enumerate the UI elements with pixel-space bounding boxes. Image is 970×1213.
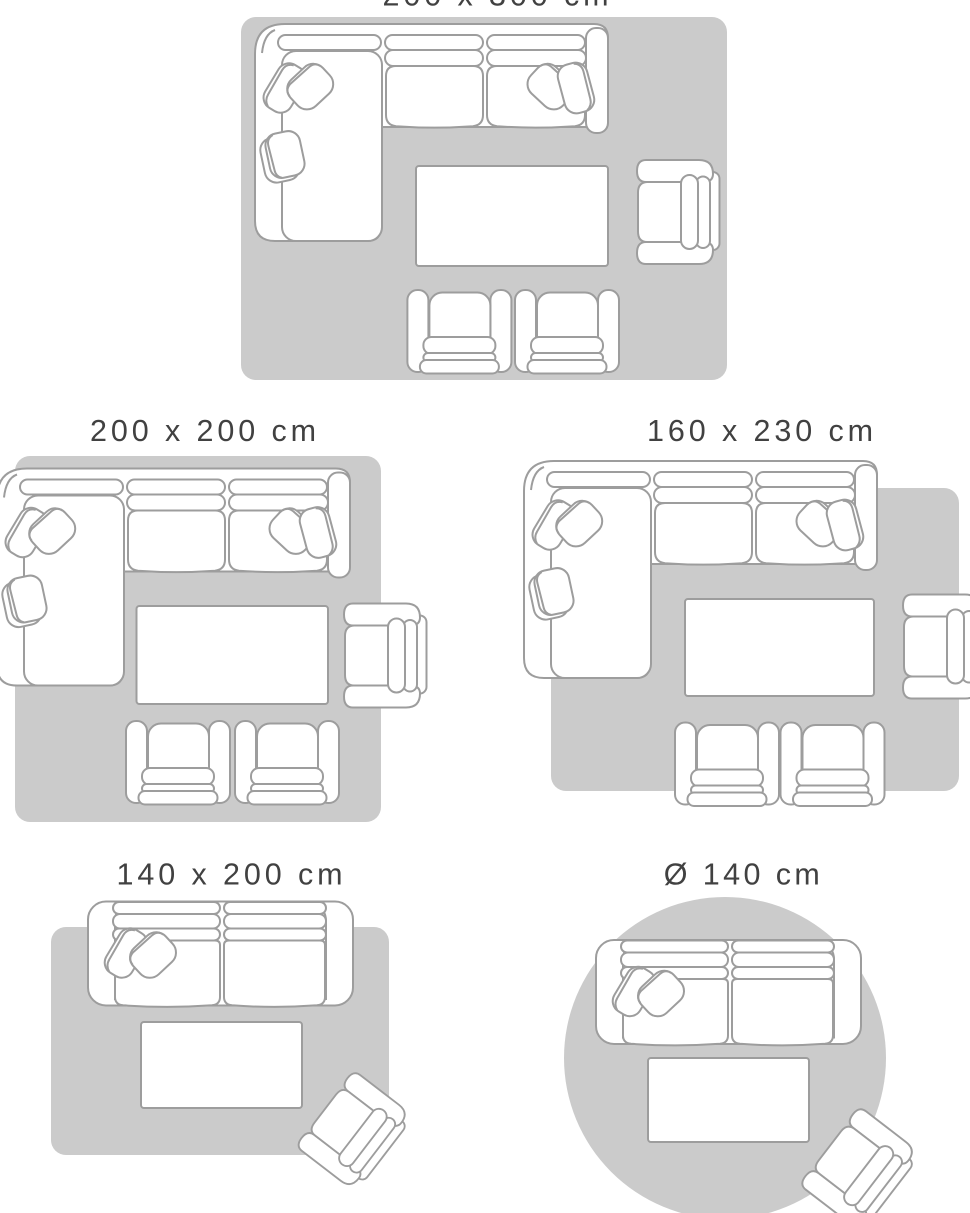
svg-text:200 x 200 cm: 200 x 200 cm xyxy=(90,414,320,448)
svg-text:160 x 230 cm: 160 x 230 cm xyxy=(647,414,877,448)
svg-text:Ø 140 cm: Ø 140 cm xyxy=(664,858,823,892)
svg-text:200 x 300 cm: 200 x 300 cm xyxy=(383,0,613,13)
svg-text:140 x 200 cm: 140 x 200 cm xyxy=(117,858,347,892)
